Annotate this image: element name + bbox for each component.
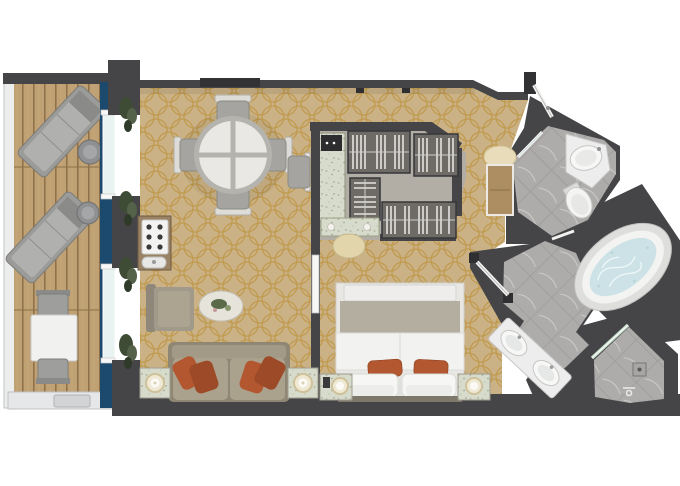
faucet-icon: [597, 147, 601, 151]
balcony-top-wall: [3, 73, 109, 84]
oval-coffee-table: [199, 291, 243, 321]
telephone: [323, 377, 330, 388]
safe: [321, 135, 342, 151]
balcony: [3, 73, 113, 409]
entry-door-post: [524, 72, 536, 94]
outdoor-chair-2: [38, 359, 68, 381]
vanity-stool: [333, 234, 365, 258]
closet-top-wall: [310, 122, 432, 131]
outdoor-chair-back: [36, 378, 70, 384]
headboard: [338, 396, 462, 402]
lamp-side-table-left: [140, 368, 170, 398]
door-handle-icon: [546, 106, 550, 110]
bed-blanket: [340, 301, 460, 333]
window-wall: [100, 60, 140, 412]
wall-lintel: [200, 78, 260, 87]
sliding-glass-door-2: [103, 267, 115, 361]
top-wall-entry: [498, 92, 528, 100]
lamp-side-table-right: [288, 368, 318, 398]
suite-floor-plan: [0, 0, 680, 486]
sliding-glass-door-1: [103, 114, 115, 197]
floor-plan-page: [0, 0, 680, 486]
desk-chair: [288, 153, 310, 191]
minibar-tray: [142, 220, 168, 254]
top-wall: [140, 80, 473, 88]
bed-foot-bench: [344, 285, 456, 301]
sofa: [168, 342, 290, 402]
outdoor-table: [31, 315, 77, 361]
minibar-cabinet: [138, 216, 171, 270]
outdoor-chair-1: [38, 294, 68, 317]
double-bed: [336, 283, 464, 402]
armchair: [146, 284, 194, 332]
railing-handle: [54, 395, 90, 407]
nightstand-right: [458, 374, 490, 400]
nightstand-left: [320, 374, 352, 400]
bedroom-door: [312, 255, 319, 313]
